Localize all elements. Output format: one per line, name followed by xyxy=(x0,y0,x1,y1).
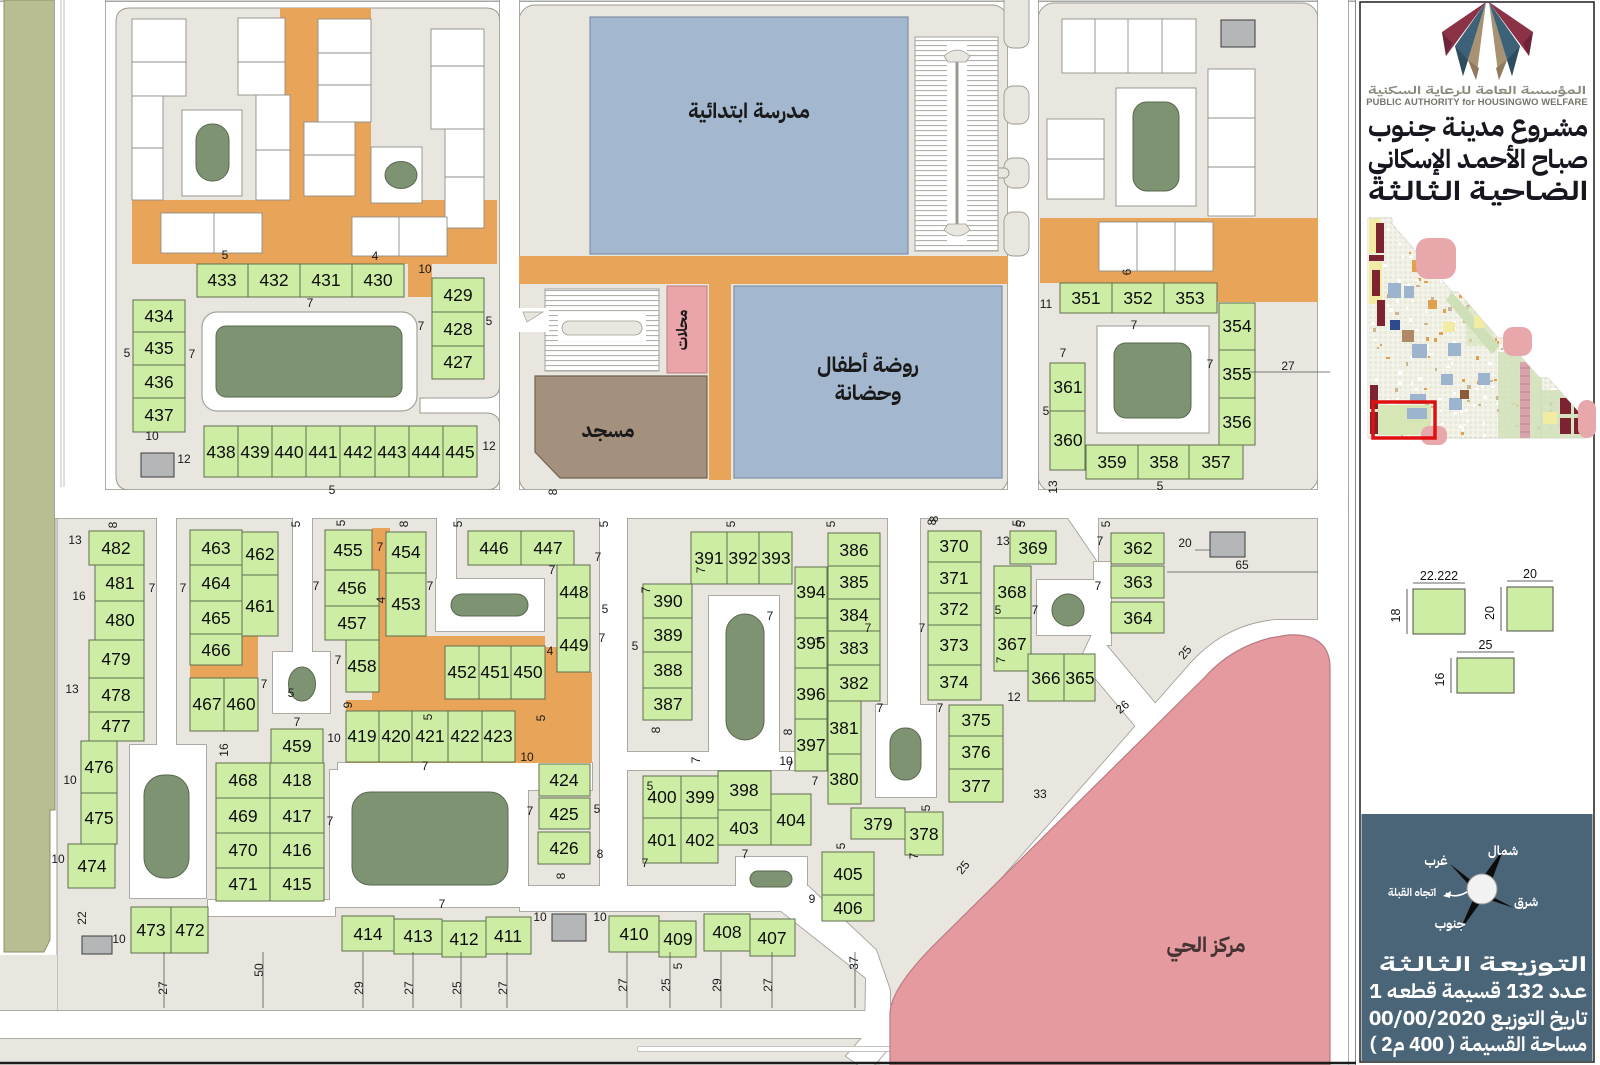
svg-text:409: 409 xyxy=(663,929,692,949)
svg-text:27: 27 xyxy=(616,978,630,992)
svg-text:33: 33 xyxy=(1033,787,1047,801)
svg-text:455: 455 xyxy=(333,540,362,560)
svg-text:12: 12 xyxy=(482,439,496,453)
svg-text:8: 8 xyxy=(927,515,941,522)
svg-text:5: 5 xyxy=(602,602,609,616)
svg-text:453: 453 xyxy=(391,594,420,614)
svg-text:7: 7 xyxy=(787,759,794,773)
svg-text:481: 481 xyxy=(105,573,134,593)
svg-text:365: 365 xyxy=(1065,668,1094,688)
svg-text:27: 27 xyxy=(156,981,170,995)
svg-text:392: 392 xyxy=(728,548,757,568)
svg-text:29: 29 xyxy=(352,981,366,995)
svg-text:435: 435 xyxy=(144,338,173,358)
svg-text:440: 440 xyxy=(274,442,303,462)
svg-text:7: 7 xyxy=(307,296,314,310)
svg-text:471: 471 xyxy=(228,874,257,894)
svg-text:7: 7 xyxy=(767,609,774,623)
svg-text:458: 458 xyxy=(347,656,376,676)
svg-text:8: 8 xyxy=(546,488,560,495)
svg-text:7: 7 xyxy=(815,636,822,650)
svg-text:7: 7 xyxy=(1097,534,1104,548)
svg-text:5: 5 xyxy=(329,483,336,497)
svg-text:478: 478 xyxy=(101,685,130,705)
svg-text:430: 430 xyxy=(363,270,392,290)
svg-text:10: 10 xyxy=(51,852,65,866)
svg-text:20: 20 xyxy=(1178,536,1192,550)
svg-text:16: 16 xyxy=(217,743,231,757)
svg-text:5: 5 xyxy=(724,520,738,527)
svg-text:5: 5 xyxy=(421,713,435,720)
svg-text:451: 451 xyxy=(480,662,509,682)
svg-text:27: 27 xyxy=(402,981,416,995)
svg-text:10: 10 xyxy=(520,750,534,764)
svg-text:7: 7 xyxy=(865,621,872,635)
svg-text:7: 7 xyxy=(189,347,196,361)
svg-text:454: 454 xyxy=(391,542,420,562)
svg-text:7: 7 xyxy=(877,701,884,715)
svg-text:387: 387 xyxy=(653,694,682,714)
svg-text:7: 7 xyxy=(1131,318,1138,332)
svg-text:5: 5 xyxy=(534,714,548,721)
svg-text:368: 368 xyxy=(997,582,1026,602)
svg-text:25: 25 xyxy=(450,981,464,995)
svg-text:25: 25 xyxy=(1479,638,1493,652)
svg-text:360: 360 xyxy=(1053,430,1082,450)
svg-text:421: 421 xyxy=(415,726,444,746)
svg-text:5: 5 xyxy=(632,639,639,653)
svg-text:7: 7 xyxy=(180,581,187,595)
svg-text:18: 18 xyxy=(1389,609,1403,623)
svg-text:378: 378 xyxy=(909,824,938,844)
svg-text:371: 371 xyxy=(939,568,968,588)
svg-text:461: 461 xyxy=(245,596,274,616)
svg-text:376: 376 xyxy=(961,742,990,762)
svg-text:5: 5 xyxy=(834,842,848,849)
svg-text:10: 10 xyxy=(533,910,547,924)
svg-text:399: 399 xyxy=(685,787,714,807)
svg-text:353: 353 xyxy=(1175,288,1204,308)
svg-text:5: 5 xyxy=(594,802,601,816)
svg-text:8: 8 xyxy=(554,872,568,879)
svg-text:428: 428 xyxy=(443,319,472,339)
svg-text:8: 8 xyxy=(106,521,120,528)
svg-text:5: 5 xyxy=(222,248,229,262)
svg-text:412: 412 xyxy=(449,929,478,949)
svg-text:374: 374 xyxy=(939,672,968,692)
svg-text:358: 358 xyxy=(1149,452,1178,472)
svg-text:379: 379 xyxy=(863,814,892,834)
svg-text:20: 20 xyxy=(1523,567,1537,581)
svg-text:397: 397 xyxy=(796,735,825,755)
svg-text:7: 7 xyxy=(549,563,556,577)
svg-text:445: 445 xyxy=(445,442,474,462)
svg-text:7: 7 xyxy=(1095,579,1102,593)
svg-text:364: 364 xyxy=(1123,608,1152,628)
svg-text:467: 467 xyxy=(192,694,221,714)
svg-text:418: 418 xyxy=(282,770,311,790)
svg-text:7: 7 xyxy=(1032,603,1039,617)
svg-text:389: 389 xyxy=(653,625,682,645)
svg-text:6: 6 xyxy=(1120,268,1134,275)
svg-text:437: 437 xyxy=(144,405,173,425)
svg-text:5: 5 xyxy=(451,520,465,527)
svg-text:9: 9 xyxy=(341,701,355,708)
svg-text:37: 37 xyxy=(847,956,861,970)
svg-text:4: 4 xyxy=(372,249,379,263)
svg-text:351: 351 xyxy=(1071,288,1100,308)
svg-text:456: 456 xyxy=(337,578,366,598)
svg-text:425: 425 xyxy=(549,804,578,824)
svg-text:464: 464 xyxy=(201,573,230,593)
svg-text:361: 361 xyxy=(1053,377,1082,397)
svg-text:7: 7 xyxy=(937,701,944,715)
svg-text:420: 420 xyxy=(381,726,410,746)
svg-text:419: 419 xyxy=(347,726,376,746)
svg-text:10: 10 xyxy=(63,773,77,787)
svg-text:446: 446 xyxy=(479,538,508,558)
svg-text:414: 414 xyxy=(353,924,382,944)
svg-text:7: 7 xyxy=(994,656,1008,663)
svg-text:PUBLIC AUTHORITY for HOUSINGWO: PUBLIC AUTHORITY for HOUSINGWO WELFARE xyxy=(1366,96,1588,107)
svg-text:459: 459 xyxy=(282,736,311,756)
svg-text:452: 452 xyxy=(447,662,476,682)
svg-text:416: 416 xyxy=(282,840,311,860)
svg-text:12: 12 xyxy=(177,452,191,466)
svg-text:10: 10 xyxy=(327,731,341,745)
svg-text:356: 356 xyxy=(1222,412,1251,432)
svg-text:460: 460 xyxy=(226,694,255,714)
svg-text:370: 370 xyxy=(939,536,968,556)
svg-text:5: 5 xyxy=(647,779,654,793)
svg-text:27: 27 xyxy=(1281,359,1295,373)
svg-text:444: 444 xyxy=(411,442,440,462)
svg-text:354: 354 xyxy=(1222,316,1251,336)
svg-text:5: 5 xyxy=(824,520,838,527)
svg-text:407: 407 xyxy=(757,928,786,948)
svg-text:7: 7 xyxy=(439,897,446,911)
svg-text:7: 7 xyxy=(418,319,425,333)
svg-text:8: 8 xyxy=(649,726,663,733)
svg-text:7: 7 xyxy=(313,579,320,593)
svg-text:447: 447 xyxy=(533,538,562,558)
svg-text:432: 432 xyxy=(259,270,288,290)
svg-text:439: 439 xyxy=(240,442,269,462)
svg-text:406: 406 xyxy=(833,898,862,918)
svg-text:465: 465 xyxy=(201,608,230,628)
svg-text:359: 359 xyxy=(1097,452,1126,472)
svg-text:413: 413 xyxy=(403,926,432,946)
svg-text:13: 13 xyxy=(65,682,79,696)
svg-text:372: 372 xyxy=(939,599,968,619)
svg-text:27: 27 xyxy=(496,981,510,995)
svg-text:424: 424 xyxy=(549,770,578,790)
svg-text:7: 7 xyxy=(327,814,334,828)
svg-text:385: 385 xyxy=(839,572,868,592)
svg-text:429: 429 xyxy=(443,285,472,305)
svg-text:12: 12 xyxy=(1007,690,1021,704)
svg-text:436: 436 xyxy=(144,372,173,392)
svg-text:403: 403 xyxy=(729,818,758,838)
svg-text:402: 402 xyxy=(685,830,714,850)
svg-text:462: 462 xyxy=(245,544,274,564)
svg-text:13: 13 xyxy=(68,533,82,547)
svg-text:22.222: 22.222 xyxy=(1420,569,1458,583)
svg-text:438: 438 xyxy=(206,442,235,462)
svg-text:10: 10 xyxy=(593,910,607,924)
svg-text:7: 7 xyxy=(642,856,649,870)
svg-text:410: 410 xyxy=(619,924,648,944)
svg-text:357: 357 xyxy=(1201,452,1230,472)
svg-text:7: 7 xyxy=(294,715,301,729)
svg-text:426: 426 xyxy=(549,838,578,858)
svg-text:393: 393 xyxy=(761,548,790,568)
svg-text:5: 5 xyxy=(486,314,493,328)
svg-text:427: 427 xyxy=(443,352,472,372)
svg-text:7: 7 xyxy=(335,653,342,667)
svg-text:8: 8 xyxy=(597,847,604,861)
svg-text:398: 398 xyxy=(729,780,758,800)
svg-text:415: 415 xyxy=(282,874,311,894)
svg-text:7: 7 xyxy=(694,566,708,573)
svg-text:477: 477 xyxy=(101,716,130,736)
svg-text:352: 352 xyxy=(1123,288,1152,308)
svg-text:369: 369 xyxy=(1018,538,1047,558)
svg-text:470: 470 xyxy=(228,840,257,860)
svg-text:463: 463 xyxy=(201,538,230,558)
svg-text:450: 450 xyxy=(513,662,542,682)
svg-text:16: 16 xyxy=(72,589,86,603)
svg-text:10: 10 xyxy=(418,262,432,276)
svg-text:7: 7 xyxy=(812,774,819,788)
svg-text:7: 7 xyxy=(427,579,434,593)
svg-text:468: 468 xyxy=(228,770,257,790)
svg-text:434: 434 xyxy=(144,306,173,326)
svg-text:7: 7 xyxy=(149,581,156,595)
svg-text:11: 11 xyxy=(1040,297,1053,311)
svg-text:382: 382 xyxy=(839,673,868,693)
svg-text:5: 5 xyxy=(671,962,685,969)
svg-text:482: 482 xyxy=(101,538,130,558)
svg-text:7: 7 xyxy=(595,550,602,564)
svg-text:7: 7 xyxy=(919,621,926,635)
svg-text:476: 476 xyxy=(84,757,113,777)
svg-text:20: 20 xyxy=(1483,606,1497,620)
svg-text:7: 7 xyxy=(639,586,653,593)
svg-text:5: 5 xyxy=(1014,520,1028,527)
svg-text:401: 401 xyxy=(647,830,676,850)
svg-text:5: 5 xyxy=(288,686,295,700)
svg-text:411: 411 xyxy=(494,926,522,946)
svg-text:449: 449 xyxy=(559,635,588,655)
svg-text:13: 13 xyxy=(996,534,1010,548)
svg-text:65: 65 xyxy=(1235,558,1249,572)
svg-text:7: 7 xyxy=(527,804,534,818)
svg-text:383: 383 xyxy=(839,638,868,658)
svg-text:473: 473 xyxy=(136,920,165,940)
svg-text:474: 474 xyxy=(77,856,106,876)
svg-text:480: 480 xyxy=(105,610,134,630)
svg-text:5: 5 xyxy=(1043,404,1050,418)
svg-text:394: 394 xyxy=(796,582,825,602)
svg-text:417: 417 xyxy=(282,806,311,826)
svg-text:13: 13 xyxy=(1046,480,1060,494)
svg-text:7: 7 xyxy=(377,540,384,554)
svg-text:380: 380 xyxy=(829,769,858,789)
svg-text:362: 362 xyxy=(1123,538,1152,558)
svg-text:5: 5 xyxy=(597,520,611,527)
svg-text:405: 405 xyxy=(833,864,862,884)
svg-text:7: 7 xyxy=(599,631,606,645)
svg-text:8: 8 xyxy=(397,520,411,527)
svg-text:375: 375 xyxy=(961,710,990,730)
svg-text:4: 4 xyxy=(547,644,554,658)
svg-text:381: 381 xyxy=(829,718,858,738)
svg-text:408: 408 xyxy=(712,922,741,942)
svg-text:423: 423 xyxy=(483,726,512,746)
svg-text:5: 5 xyxy=(1157,479,1164,493)
svg-text:479: 479 xyxy=(101,649,130,669)
svg-text:404: 404 xyxy=(776,810,805,830)
svg-text:7: 7 xyxy=(422,759,429,773)
svg-text:366: 366 xyxy=(1031,668,1060,688)
svg-text:390: 390 xyxy=(653,591,682,611)
svg-text:8: 8 xyxy=(781,728,795,735)
svg-text:5: 5 xyxy=(289,520,303,527)
svg-text:7: 7 xyxy=(261,677,268,691)
svg-text:9: 9 xyxy=(809,892,816,906)
svg-text:10: 10 xyxy=(112,932,126,946)
svg-text:7: 7 xyxy=(1207,357,1214,371)
svg-text:441: 441 xyxy=(308,442,337,462)
svg-text:7: 7 xyxy=(907,852,921,859)
svg-text:475: 475 xyxy=(84,808,113,828)
svg-text:5: 5 xyxy=(124,346,131,360)
svg-text:386: 386 xyxy=(839,540,868,560)
svg-text:377: 377 xyxy=(961,776,990,796)
svg-text:50: 50 xyxy=(252,963,266,977)
svg-text:7: 7 xyxy=(1060,346,1067,360)
svg-text:469: 469 xyxy=(228,806,257,826)
svg-text:373: 373 xyxy=(939,635,968,655)
svg-text:4: 4 xyxy=(374,596,388,603)
svg-text:396: 396 xyxy=(796,684,825,704)
svg-text:388: 388 xyxy=(653,660,682,680)
svg-text:443: 443 xyxy=(377,442,406,462)
svg-text:7: 7 xyxy=(742,847,749,861)
svg-text:472: 472 xyxy=(175,920,204,940)
svg-text:457: 457 xyxy=(337,613,366,633)
svg-text:29: 29 xyxy=(710,978,724,992)
svg-text:363: 363 xyxy=(1123,572,1152,592)
svg-text:16: 16 xyxy=(1433,673,1447,687)
svg-text:27: 27 xyxy=(761,978,775,992)
svg-text:5: 5 xyxy=(334,519,348,526)
svg-text:433: 433 xyxy=(207,270,236,290)
svg-text:10: 10 xyxy=(145,429,159,443)
svg-text:431: 431 xyxy=(311,270,340,290)
svg-text:422: 422 xyxy=(450,726,479,746)
svg-text:22: 22 xyxy=(75,911,89,925)
svg-text:355: 355 xyxy=(1222,364,1251,384)
svg-text:466: 466 xyxy=(201,640,230,660)
svg-text:442: 442 xyxy=(343,442,372,462)
svg-text:367: 367 xyxy=(997,634,1026,654)
svg-text:25: 25 xyxy=(659,978,673,992)
svg-text:5: 5 xyxy=(919,804,933,811)
svg-text:391: 391 xyxy=(694,548,723,568)
svg-text:5: 5 xyxy=(1099,520,1113,527)
svg-text:5: 5 xyxy=(995,603,1002,617)
svg-text:7: 7 xyxy=(689,756,703,763)
svg-text:448: 448 xyxy=(559,582,588,602)
